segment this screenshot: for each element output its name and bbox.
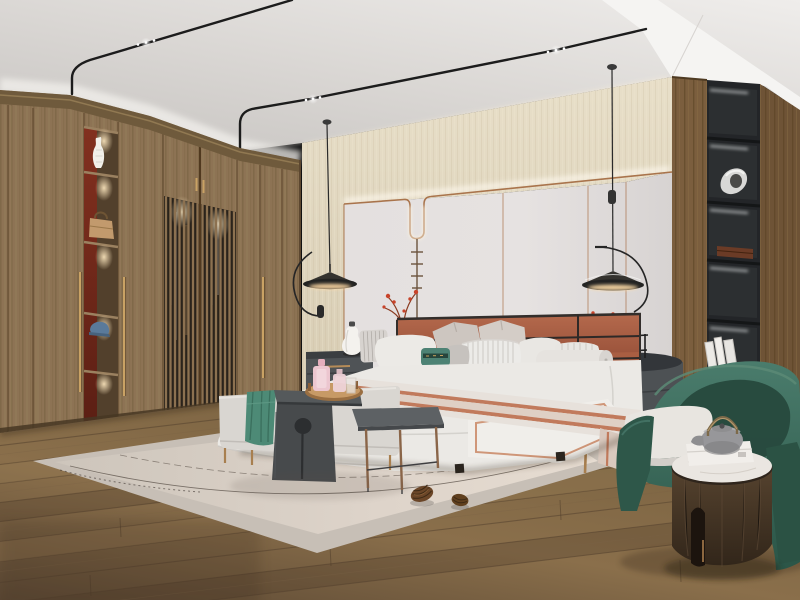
teal-throw	[245, 390, 276, 445]
bedroom-render	[0, 0, 800, 600]
display-niche	[84, 127, 118, 423]
scene-canvas	[0, 0, 800, 600]
pillow-teal	[421, 348, 450, 366]
pendant-mount-left	[323, 119, 332, 124]
